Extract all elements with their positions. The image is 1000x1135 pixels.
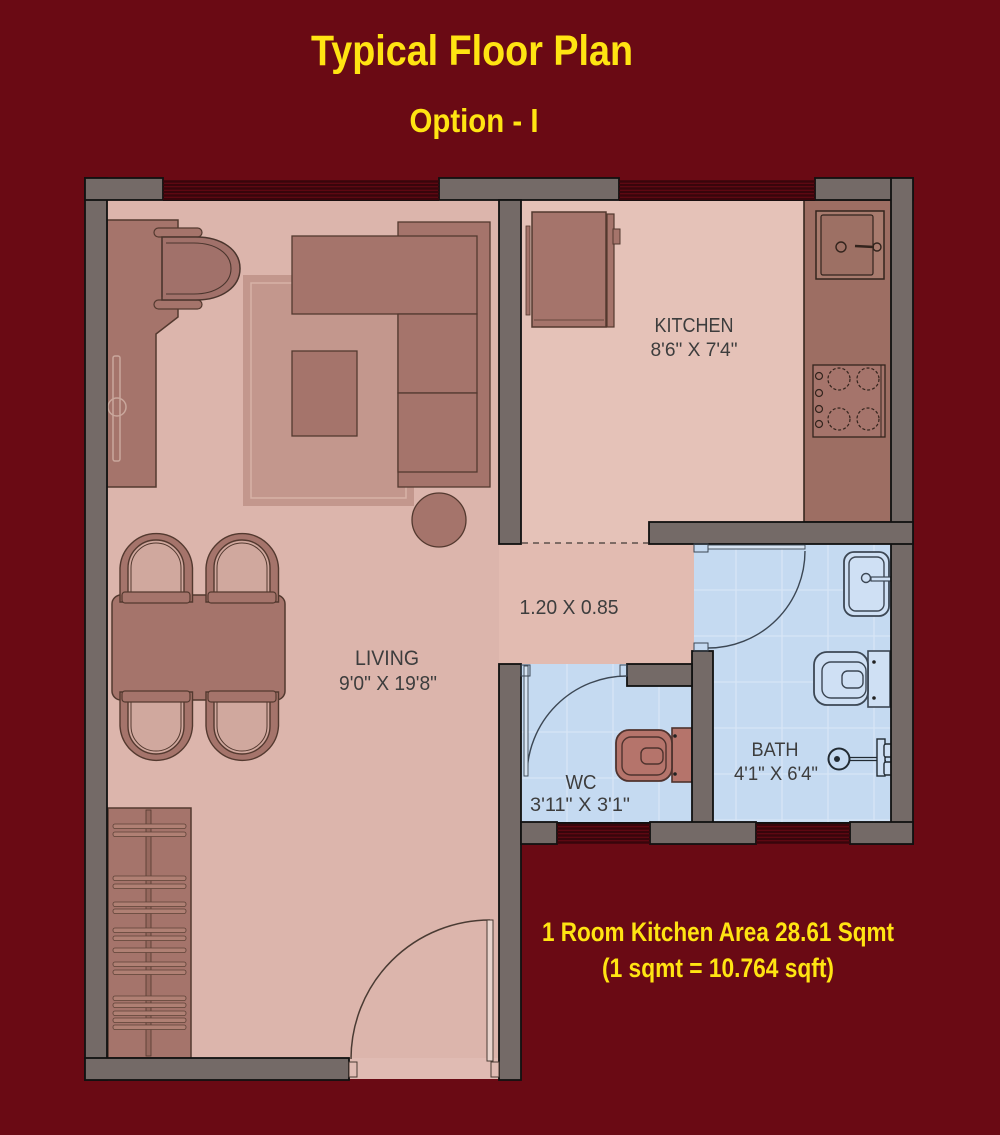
svg-text:LIVING: LIVING — [355, 647, 419, 670]
svg-text:4'1" X 6'4": 4'1" X 6'4" — [734, 764, 818, 785]
svg-text:3'11" X 3'1": 3'11" X 3'1" — [530, 795, 630, 816]
svg-text:9'0" X 19'8": 9'0" X 19'8" — [339, 673, 437, 695]
svg-text:(1 sqmt = 10.764 sqft): (1 sqmt = 10.764 sqft) — [602, 953, 834, 983]
svg-text:1.20 X 0.85: 1.20 X 0.85 — [520, 597, 619, 619]
svg-text:BATH: BATH — [752, 740, 799, 761]
svg-text:KITCHEN: KITCHEN — [655, 315, 734, 337]
svg-text:1 Room Kitchen Area 28.61 Sqmt: 1 Room Kitchen Area 28.61 Sqmt — [542, 917, 894, 947]
svg-text:Option - I: Option - I — [410, 102, 539, 139]
svg-text:8'6" X 7'4": 8'6" X 7'4" — [651, 340, 738, 361]
svg-text:Typical Floor Plan: Typical Floor Plan — [311, 27, 633, 75]
svg-text:WC: WC — [566, 772, 597, 794]
